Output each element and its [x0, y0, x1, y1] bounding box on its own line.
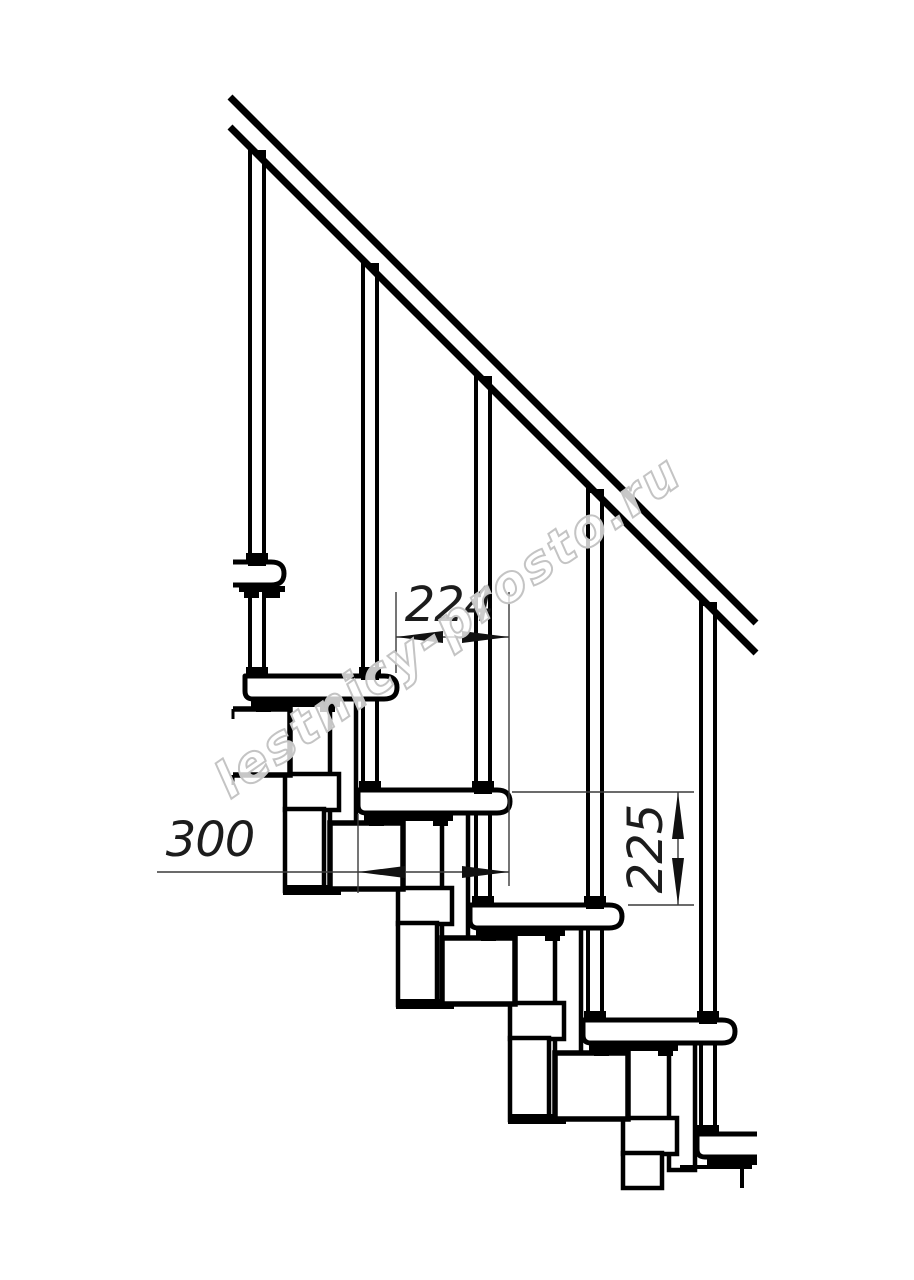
handrail-upper-line	[230, 97, 756, 623]
tread-6	[697, 1134, 757, 1157]
module-box-5	[555, 1053, 628, 1119]
shadow-tab	[265, 591, 280, 598]
module-bracket-lower-2	[285, 809, 324, 891]
dimension-label-225: 225	[618, 805, 674, 894]
baluster-5	[701, 604, 715, 1022]
staircase-structure	[233, 143, 757, 1188]
module-bracket-lower-4	[510, 1038, 549, 1120]
shadow-tab	[712, 1162, 727, 1169]
shadow-tab	[433, 819, 448, 826]
module-bracket-upper-4	[510, 1003, 564, 1039]
baluster-1	[250, 152, 264, 564]
support-post-4	[588, 927, 602, 1022]
shadow-tab	[481, 934, 496, 941]
shadow-tab	[737, 1162, 752, 1169]
module-bracket-upper-3	[398, 888, 452, 924]
support-post-3	[476, 812, 490, 907]
shadow-tab	[244, 591, 259, 598]
support-post-5	[701, 1042, 715, 1136]
shadow-tab	[545, 934, 560, 941]
baluster-collar-1	[246, 553, 268, 562]
module-bracket-lower-5	[623, 1153, 662, 1188]
shadow-tab	[256, 705, 271, 712]
module-bracket-upper-2	[285, 774, 339, 810]
drawing-canvas: 224 300 225 lestnicy-prosto.ru	[0, 0, 914, 1280]
staircase-drawing: 224 300 225 lestnicy-prosto.ru	[0, 0, 914, 1280]
shadow-tab	[658, 1049, 673, 1056]
baluster-2	[363, 265, 377, 678]
watermark: lestnicy-prosto.ru	[204, 443, 693, 810]
support-post-1	[250, 584, 264, 678]
shadow-tab	[369, 819, 384, 826]
module-box-4	[442, 938, 515, 1004]
dimension-label-300: 300	[166, 812, 255, 868]
module-bracket-upper-5	[623, 1118, 677, 1154]
baluster-collar-3	[472, 781, 494, 790]
shadow-tab	[594, 1049, 609, 1056]
module-box-3	[330, 823, 403, 889]
baluster-collar-5	[697, 1011, 719, 1020]
baluster-collar-4	[584, 896, 606, 905]
module-bracket-lower-3	[398, 923, 437, 1005]
